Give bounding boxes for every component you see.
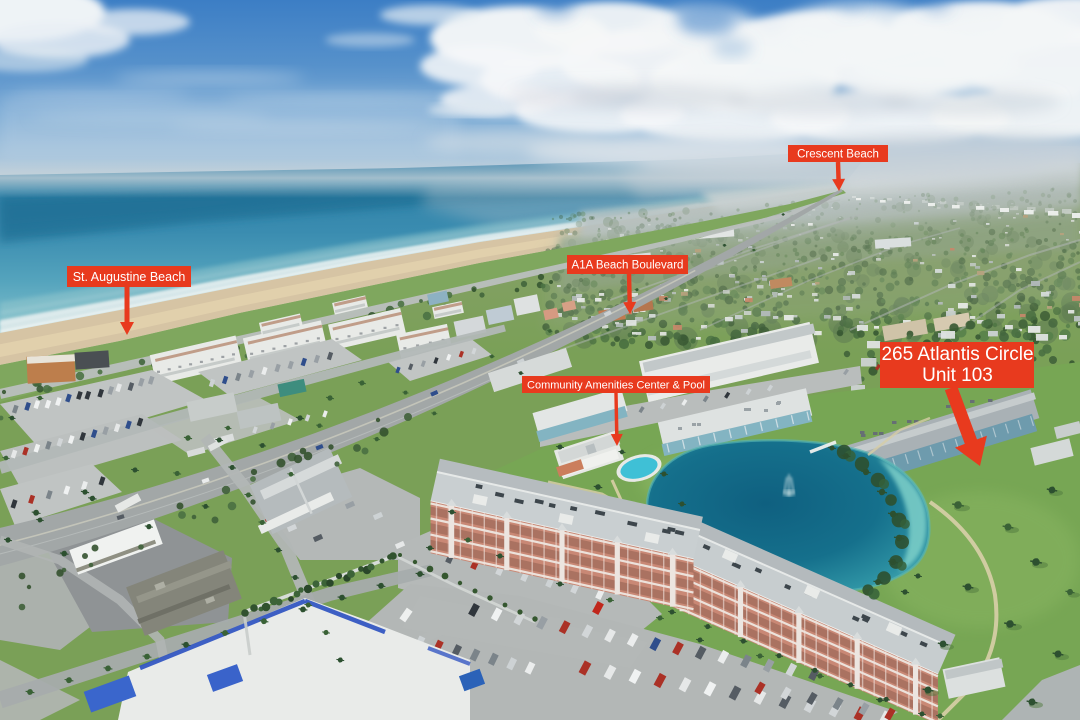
svg-text:Crescent Beach: Crescent Beach — [797, 149, 879, 161]
svg-text:St. Augustine Beach: St. Augustine Beach — [73, 270, 186, 284]
svg-text:A1A Beach Boulevard: A1A Beach Boulevard — [572, 260, 684, 272]
svg-text:265 Atlantis Circle: 265 Atlantis Circle — [881, 344, 1033, 365]
svg-text:Community Amenities Center & P: Community Amenities Center & Pool — [527, 380, 705, 392]
svg-text:Unit 103: Unit 103 — [922, 365, 993, 386]
